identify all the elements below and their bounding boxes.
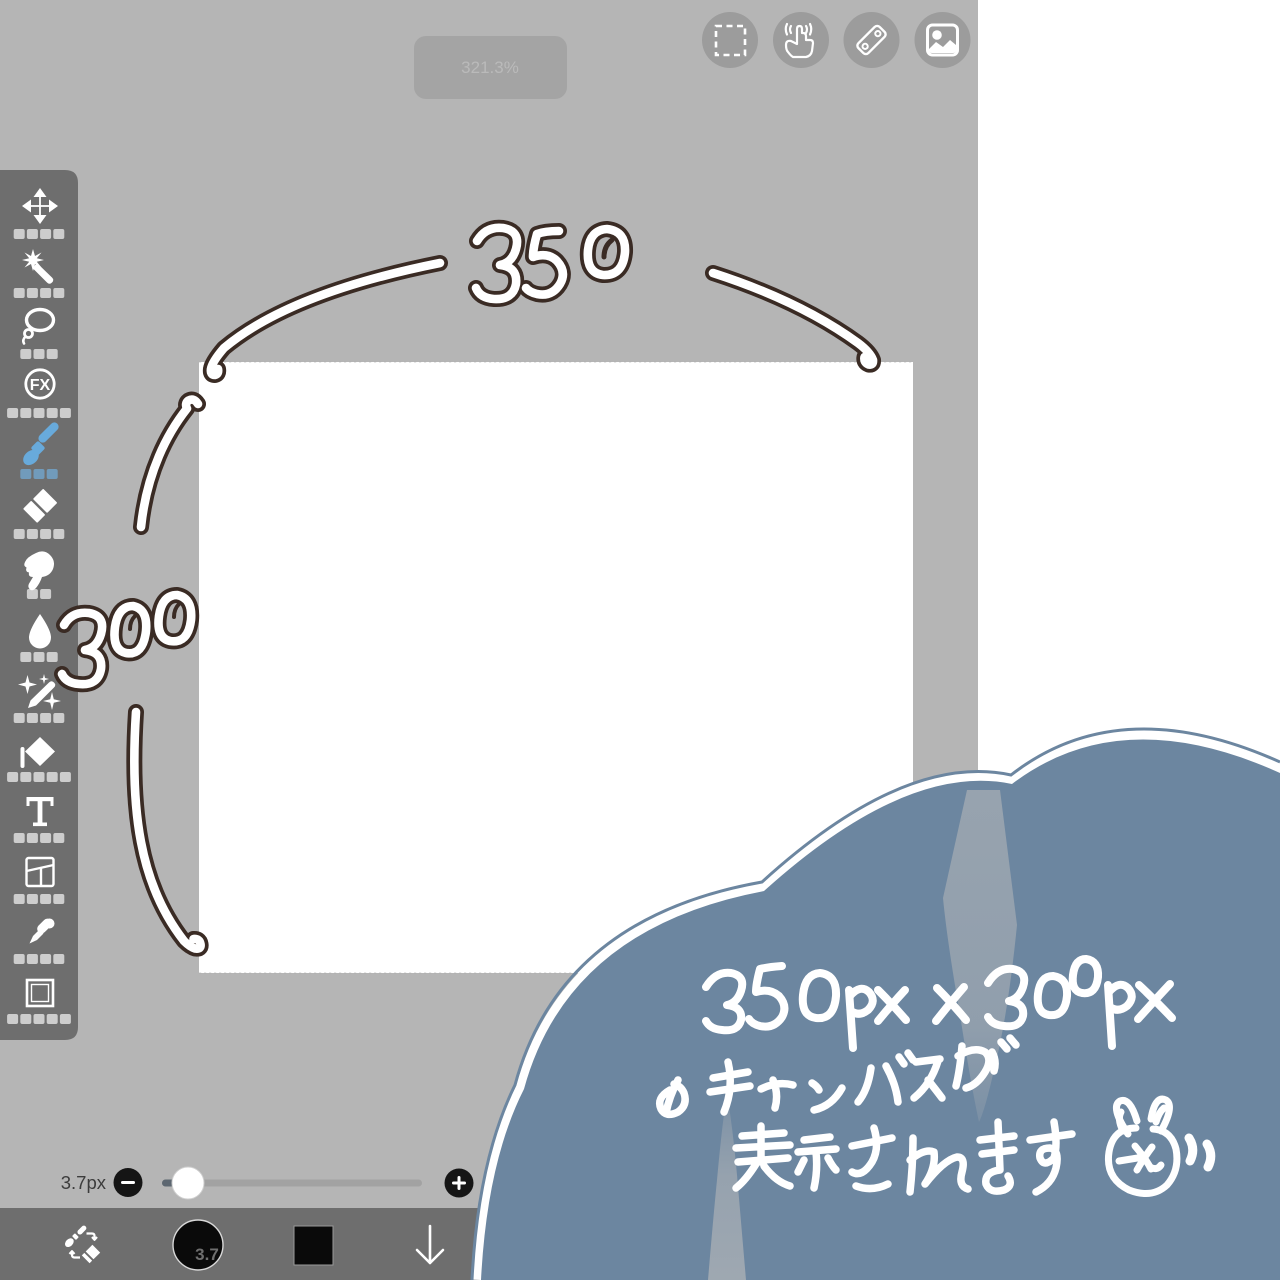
- svg-text:321.3%: 321.3%: [461, 58, 519, 77]
- svg-text:3.7px: 3.7px: [61, 1172, 107, 1193]
- svg-text:3.7: 3.7: [195, 1245, 219, 1264]
- svg-text:FX: FX: [30, 377, 51, 394]
